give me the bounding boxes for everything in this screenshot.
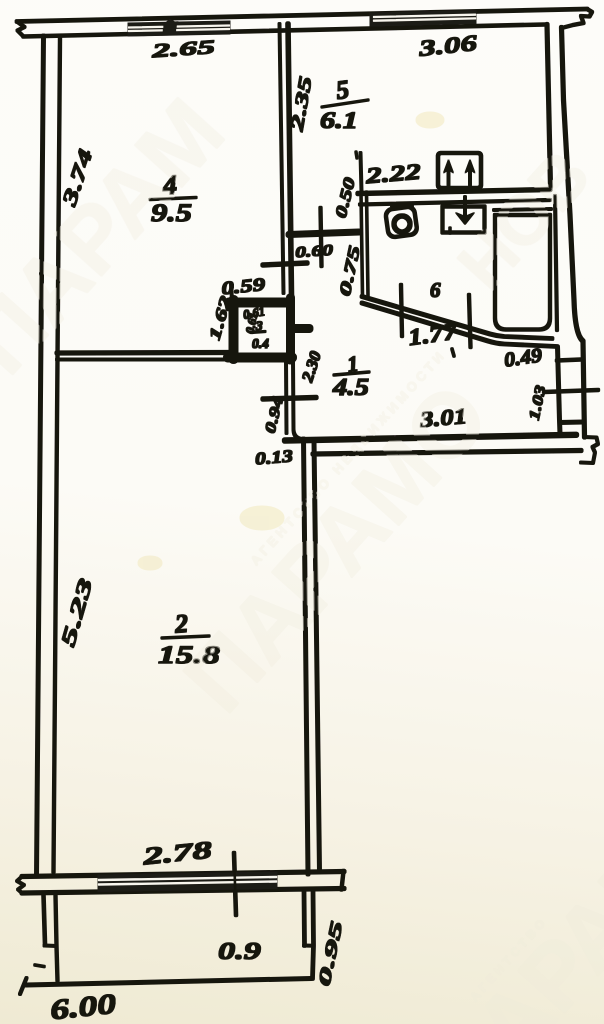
svg-text:0.50: 0.50 — [333, 176, 359, 220]
svg-text:9.5: 9.5 — [151, 200, 192, 227]
svg-text:0.4: 0.4 — [252, 336, 269, 351]
svg-text:2.78: 2.78 — [140, 837, 213, 870]
svg-text:5: 5 — [334, 75, 351, 106]
svg-text:ПАРАМ: ПАРАМ — [0, 80, 244, 393]
svg-text:0.75: 0.75 — [337, 244, 364, 297]
svg-text:15.8: 15.8 — [158, 642, 221, 669]
svg-text:1.03: 1.03 — [527, 383, 550, 421]
svg-text:0.13: 0.13 — [254, 446, 294, 468]
svg-text:6.00: 6.00 — [49, 989, 118, 1024]
svg-text:2.65: 2.65 — [150, 37, 217, 63]
svg-text:ПАРАМ: ПАРАМ — [411, 817, 604, 1024]
svg-text:3.01: 3.01 — [418, 403, 468, 432]
svg-text:2.22: 2.22 — [363, 159, 421, 189]
svg-text:0.9: 0.9 — [218, 939, 261, 965]
svg-text:0.49: 0.49 — [503, 344, 544, 371]
svg-text:0.60: 0.60 — [295, 243, 335, 262]
svg-text:5.23: 5.23 — [57, 576, 97, 649]
svg-text:2.30: 2.30 — [299, 349, 325, 385]
svg-text:4.5: 4.5 — [332, 375, 369, 401]
svg-text:4: 4 — [161, 170, 178, 202]
svg-text:3.06: 3.06 — [416, 30, 478, 61]
svg-text:1.77: 1.77 — [407, 318, 461, 350]
svg-text:0.59: 0.59 — [220, 274, 266, 298]
svg-text:0.95: 0.95 — [314, 918, 347, 988]
svg-text:2: 2 — [173, 609, 189, 639]
svg-text:6: 6 — [430, 278, 441, 302]
svg-text:6.1: 6.1 — [320, 108, 358, 133]
